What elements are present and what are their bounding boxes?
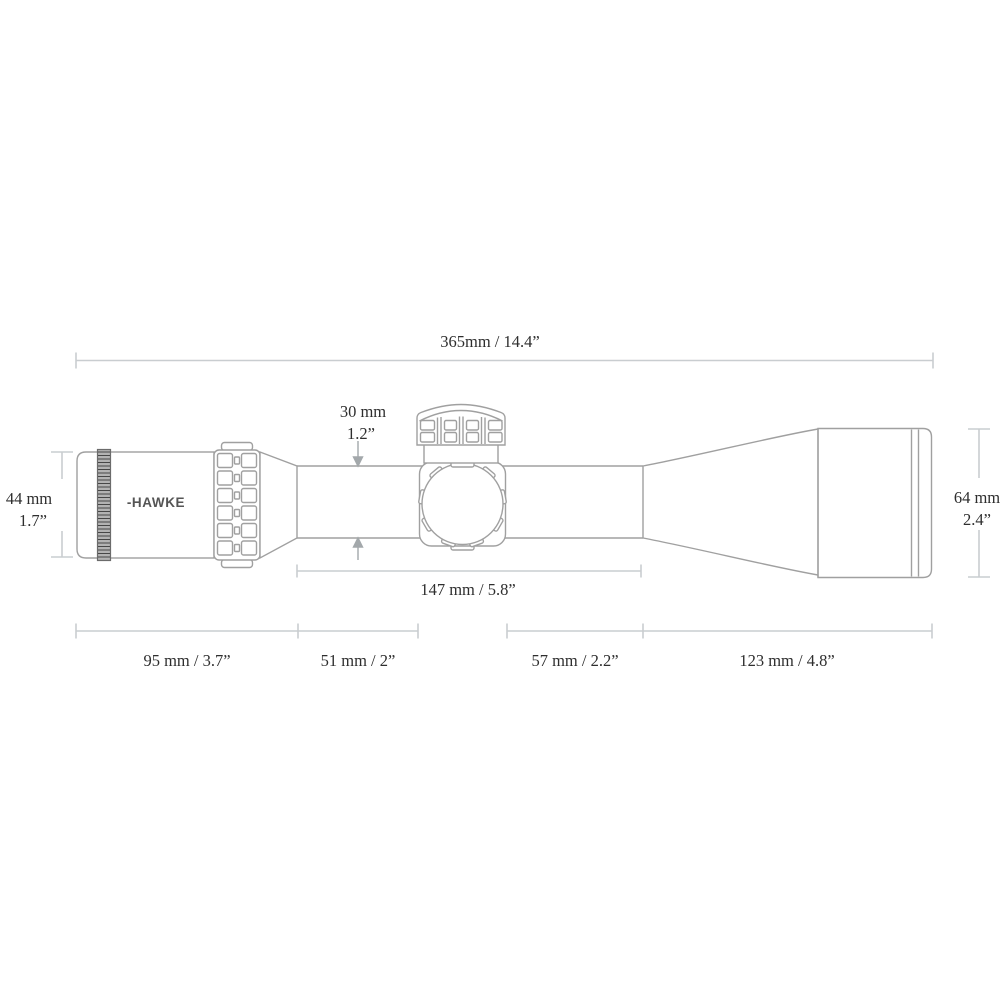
- label-saddle-span: 147 mm / 5.8”: [420, 580, 515, 599]
- diopter-ring: [98, 450, 111, 561]
- label-seg-objective: 123 mm / 4.8”: [739, 651, 834, 670]
- eyepiece-taper: [260, 452, 297, 558]
- label-objective-diameter-in: 2.4”: [963, 510, 991, 529]
- dim-overall-length-line: [76, 353, 933, 369]
- objective-bell: [818, 429, 932, 578]
- label-seg-eyepiece: 95 mm / 3.7”: [143, 651, 230, 670]
- label-seg-tube-rear: 57 mm / 2.2”: [531, 651, 618, 670]
- riflescope-dimension-diagram: -HAWKE 365mm / 14.4” 30 mm 1.2” 44 mm 1.…: [0, 0, 1000, 1000]
- scope-drawing: [77, 405, 932, 578]
- elevation-turret: [417, 405, 505, 468]
- label-overall-length: 365mm / 14.4”: [440, 332, 539, 351]
- zoom-ring: [214, 443, 260, 568]
- label-tube-diameter-in: 1.2”: [347, 424, 375, 443]
- objective-taper: [643, 429, 818, 575]
- arrow-down-head: [354, 457, 363, 466]
- turret-saddle: [418, 461, 506, 551]
- label-objective-diameter-mm: 64 mm: [954, 488, 1000, 507]
- diagram-svg: -HAWKE 365mm / 14.4” 30 mm 1.2” 44 mm 1.…: [0, 0, 1000, 1000]
- label-ocular-diameter-in: 1.7”: [19, 511, 47, 530]
- label-tube-diameter-mm: 30 mm: [340, 402, 386, 421]
- side-focus-wheel: [422, 464, 503, 545]
- label-seg-tube-front: 51 mm / 2”: [321, 651, 396, 670]
- dim-saddle-span-line: [297, 565, 641, 578]
- dim-bottom-segments-line: [76, 624, 932, 639]
- label-ocular-diameter-mm: 44 mm: [6, 489, 52, 508]
- turret-base: [424, 443, 498, 463]
- dim-ocular-diameter-line: [51, 452, 73, 557]
- tube-diameter-arrows: [354, 441, 363, 560]
- objective-assembly: [643, 429, 932, 578]
- arrow-up-head: [354, 538, 363, 547]
- brand-logo-text: -HAWKE: [127, 495, 185, 510]
